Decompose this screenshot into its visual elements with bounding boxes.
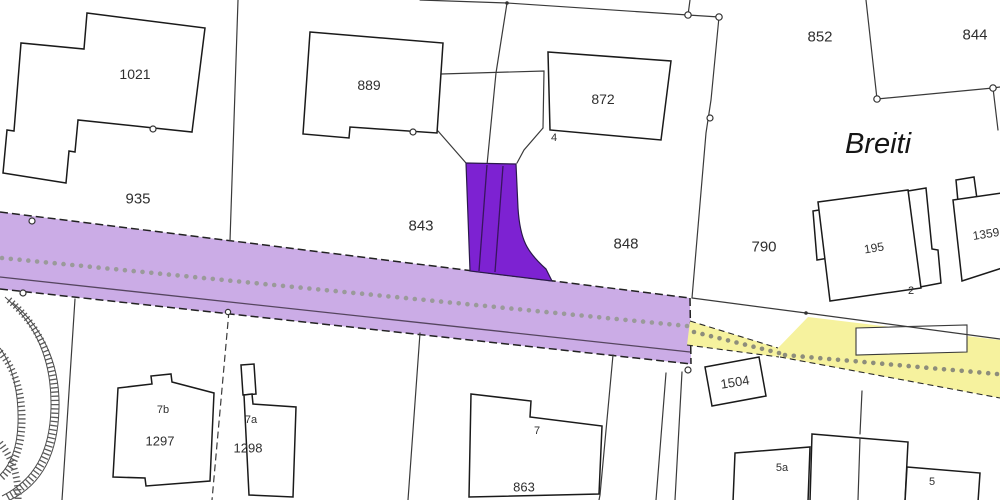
- cadastral-map-view[interactable]: 1021935889843872848852844790195135915041…: [0, 0, 1000, 500]
- dotted-path-on-road-dot: [623, 318, 628, 323]
- dotted-path-yellow-wide-dot: [951, 368, 956, 373]
- parcel-label-843: 843: [408, 218, 433, 235]
- dotted-path-on-road-dot: [9, 257, 14, 262]
- dotted-path-on-road-dot: [509, 306, 514, 311]
- dotted-path-on-road-dot: [307, 286, 312, 291]
- dotted-path-yellow-wide-dot: [995, 372, 1000, 377]
- dotted-path-on-road-dot: [325, 288, 330, 293]
- dotted-path-on-road-dot: [571, 312, 576, 317]
- parcel-label-1021: 1021: [119, 66, 150, 82]
- dotted-path-yellow-wide-dot: [968, 369, 973, 374]
- dotted-path-yellow-wide-dot: [836, 358, 841, 363]
- building-5a: [733, 447, 810, 500]
- dotted-path-on-road-dot: [351, 291, 356, 296]
- dotted-path-yellow-wide-dot: [906, 364, 911, 369]
- dotted-path-on-road-dot: [606, 316, 611, 321]
- dotted-path-on-road-dot: [597, 315, 602, 320]
- dotted-path-on-road-dot: [52, 261, 57, 266]
- dotted-path-on-road-dot: [298, 285, 303, 290]
- parcel-label-863: 863: [513, 480, 535, 495]
- dotted-path-on-road-dot: [342, 290, 347, 295]
- dotted-path-yellow-wide-dot: [845, 358, 850, 363]
- house-number-7b: 7b: [157, 404, 169, 416]
- dotted-path-on-road-dot: [658, 321, 663, 326]
- dotted-path-on-road-dot: [676, 323, 681, 328]
- dotted-path-on-road-dot: [219, 278, 224, 283]
- dotted-path-on-road-dot: [448, 300, 453, 305]
- dotted-path-yellow-wide-dot: [800, 354, 805, 359]
- dotted-path-on-road-dot: [202, 276, 207, 281]
- dotted-path-yellow-wide-dot: [924, 365, 929, 370]
- dotted-path-on-road-dot: [386, 294, 391, 299]
- dotted-path-on-road-dot: [667, 322, 672, 327]
- dotted-path-on-road-dot: [518, 307, 523, 312]
- dotted-path-on-road-dot: [685, 324, 690, 329]
- dotted-path-yellow-wide-dot: [889, 362, 894, 367]
- place-label-breiti: Breiti: [845, 128, 913, 160]
- dotted-path-on-road-dot: [527, 308, 532, 313]
- dotted-path-on-road-dot: [483, 304, 488, 309]
- dotted-path-on-road-dot: [175, 273, 180, 278]
- dotted-path-yellow-narrow-dot: [692, 330, 697, 335]
- yellow-white-notch: [856, 325, 967, 355]
- house-number-2: 2: [908, 285, 914, 297]
- dotted-path-on-road-dot: [588, 314, 593, 319]
- dotted-path-on-road-dot: [421, 298, 426, 303]
- dotted-path-yellow-narrow-dot: [717, 336, 722, 341]
- dotted-path-yellow-wide-dot: [818, 356, 823, 361]
- dotted-path-on-road-dot: [246, 280, 251, 285]
- house-number-4: 4: [551, 132, 557, 144]
- dotted-path-on-road-dot: [79, 264, 84, 269]
- dotted-path-yellow-wide-dot: [880, 361, 885, 366]
- dotted-path-on-road-dot: [17, 257, 22, 262]
- dotted-path-on-road-dot: [61, 262, 66, 267]
- dotted-path-on-road-dot: [237, 279, 242, 284]
- dotted-path-on-road-dot: [281, 284, 286, 289]
- dotted-path-on-road-dot: [254, 281, 259, 286]
- dotted-path-on-road-dot: [211, 277, 216, 282]
- dotted-path-on-road-dot: [650, 320, 655, 325]
- dotted-path-yellow-wide-dot: [915, 365, 920, 370]
- dotted-path-on-road-dot: [632, 319, 637, 324]
- building-1298-annex: [241, 364, 256, 395]
- dotted-path-on-road-dot: [641, 319, 646, 324]
- dotted-path-on-road-dot: [333, 289, 338, 294]
- dotted-path-yellow-narrow-dot: [743, 342, 748, 347]
- dotted-path-on-road-dot: [413, 297, 418, 302]
- building-5: [905, 467, 980, 500]
- dotted-path-yellow-wide-dot: [898, 363, 903, 368]
- dotted-path-on-road-dot: [456, 301, 461, 306]
- dotted-path-on-road-dot: [465, 302, 470, 307]
- dotted-path-on-road-dot: [316, 287, 321, 292]
- parcel-label-848: 848: [613, 236, 638, 253]
- dotted-path-yellow-narrow-dot: [709, 334, 714, 339]
- parcel-label-935: 935: [125, 191, 150, 208]
- dotted-path-on-road-dot: [193, 275, 198, 280]
- dotted-path-on-road-dot: [474, 303, 479, 308]
- dotted-path-yellow-wide-dot: [942, 367, 947, 372]
- dotted-path-yellow-wide-dot: [783, 353, 788, 358]
- parcel-label-790: 790: [751, 239, 776, 256]
- house-number-7: 7: [534, 425, 540, 437]
- dotted-path-on-road-dot: [290, 285, 295, 290]
- dotted-path-on-road-dot: [44, 260, 49, 265]
- dotted-path-yellow-narrow-dot: [751, 344, 756, 349]
- dotted-path-yellow-wide-dot: [809, 355, 814, 360]
- dotted-path-on-road-dot: [184, 274, 189, 279]
- dotted-path-on-road-dot: [562, 312, 567, 317]
- dotted-path-on-road-dot: [26, 258, 31, 263]
- dotted-path-on-road-dot: [377, 293, 382, 298]
- dotted-path-yellow-wide-dot: [977, 370, 982, 375]
- dotted-path-on-road-dot: [430, 298, 435, 303]
- dotted-path-on-road-dot: [140, 270, 145, 275]
- dotted-path-on-road-dot: [123, 268, 128, 273]
- dotted-path-on-road-dot: [272, 283, 277, 288]
- dotted-path-on-road-dot: [114, 267, 119, 272]
- dotted-path-yellow-narrow-dot: [726, 338, 731, 343]
- dotted-path-on-road-dot: [544, 310, 549, 315]
- dotted-path-yellow-wide-dot: [933, 366, 938, 371]
- parcel-label-872: 872: [591, 91, 615, 107]
- dotted-path-on-road-dot: [614, 317, 619, 322]
- dotted-path-yellow-wide-dot: [986, 371, 991, 376]
- dotted-path-on-road-dot: [167, 272, 172, 277]
- dotted-path-on-road-dot: [369, 292, 374, 297]
- dotted-path-on-road-dot: [395, 295, 400, 300]
- dotted-path-yellow-wide-dot: [959, 369, 964, 374]
- dotted-path-on-road-dot: [228, 278, 233, 283]
- dotted-path-yellow-narrow-dot: [700, 332, 705, 337]
- dotted-path-on-road-dot: [149, 271, 154, 276]
- dotted-path-on-road-dot: [263, 282, 268, 287]
- dotted-path-yellow-wide-dot: [862, 360, 867, 365]
- dotted-path-on-road-dot: [500, 305, 505, 310]
- parcel-label-852: 852: [807, 29, 832, 46]
- parcel-label-1298: 1298: [234, 441, 263, 456]
- dotted-path-on-road-dot: [131, 269, 136, 274]
- dotted-path-on-road-dot: [70, 263, 75, 268]
- dotted-path-yellow-narrow-dot: [768, 349, 773, 354]
- dotted-path-on-road-dot: [360, 291, 365, 296]
- house-number-5: 5: [929, 476, 935, 488]
- parcel-label-1297: 1297: [146, 434, 175, 449]
- house-number-5a: 5a: [776, 462, 789, 474]
- dotted-path-yellow-wide-dot: [871, 361, 876, 366]
- parcel-label-844: 844: [962, 27, 987, 44]
- dotted-path-on-road-dot: [579, 313, 584, 318]
- dotted-path-yellow-narrow-dot: [734, 340, 739, 345]
- parcel-label-889: 889: [357, 77, 381, 93]
- dotted-path-yellow-narrow-dot: [777, 351, 782, 356]
- dotted-path-on-road-dot: [88, 264, 93, 269]
- dotted-path-on-road-dot: [439, 299, 444, 304]
- dotted-path-yellow-narrow-dot: [760, 347, 765, 352]
- dotted-path-yellow-wide-dot: [853, 359, 858, 364]
- building-1297: [113, 374, 214, 486]
- dotted-path-on-road-dot: [35, 259, 40, 264]
- dotted-path-on-road-dot: [404, 296, 409, 301]
- dotted-path-yellow-wide-dot: [827, 357, 832, 362]
- dotted-path-on-road-dot: [492, 305, 497, 310]
- dotted-path-on-road-dot: [158, 271, 163, 276]
- house-number-7a: 7a: [245, 414, 258, 426]
- dotted-path-yellow-wide-dot: [792, 354, 797, 359]
- dotted-path-on-road-dot: [553, 311, 558, 316]
- dotted-path-on-road-dot: [535, 309, 540, 314]
- dotted-path-on-road-dot: [105, 266, 110, 271]
- dotted-path-on-road-dot: [96, 265, 101, 270]
